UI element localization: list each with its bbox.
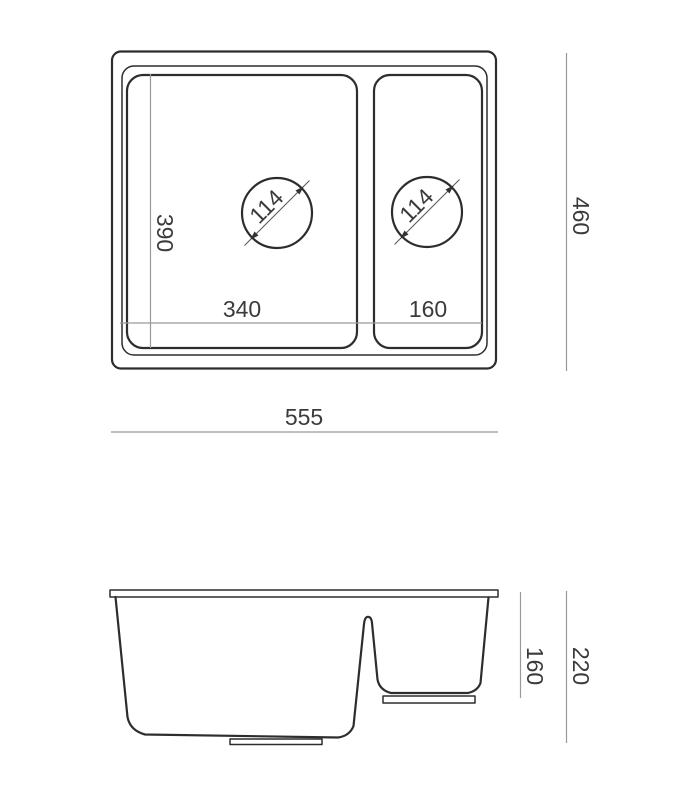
half-bowl-width-label: 160 bbox=[409, 296, 447, 322]
overall-width-label: 555 bbox=[285, 404, 323, 430]
main-bowl-drain-boss bbox=[230, 739, 322, 745]
sink-technical-drawing: 114 114 390 340 160 460 555 bbox=[0, 0, 683, 800]
sink-body-profile bbox=[116, 597, 489, 738]
top-view: 114 114 390 340 160 460 555 bbox=[111, 52, 594, 433]
overall-depth-label: 460 bbox=[568, 197, 594, 235]
main-bowl-width-label: 340 bbox=[223, 296, 261, 322]
side-rim-bar bbox=[110, 590, 498, 597]
main-bowl-drain: 114 bbox=[242, 178, 312, 248]
half-bowl-drain: 114 bbox=[392, 177, 462, 247]
half-bowl-drain-boss bbox=[383, 696, 475, 703]
overall-height-label: 220 bbox=[568, 647, 594, 685]
main-bowl-depth-label: 390 bbox=[152, 214, 178, 252]
half-bowl-depth-label: 160 bbox=[522, 647, 548, 685]
side-view: 160 220 bbox=[110, 590, 594, 745]
